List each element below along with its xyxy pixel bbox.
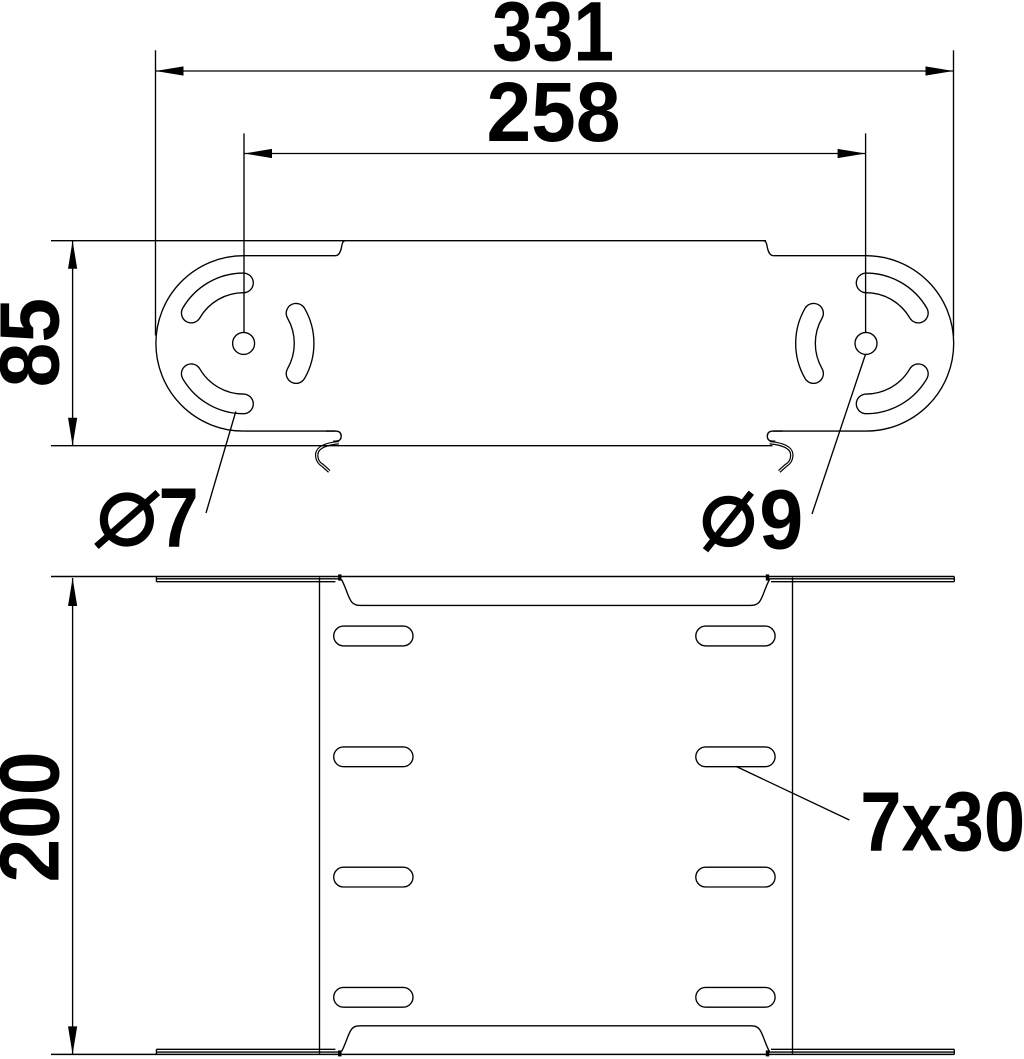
svg-text:7: 7 (159, 471, 199, 565)
svg-text:200: 200 (0, 752, 77, 883)
svg-text:258: 258 (487, 65, 621, 159)
svg-text:9: 9 (759, 472, 803, 566)
svg-text:85: 85 (0, 298, 76, 388)
svg-text:7x30: 7x30 (860, 775, 1024, 869)
